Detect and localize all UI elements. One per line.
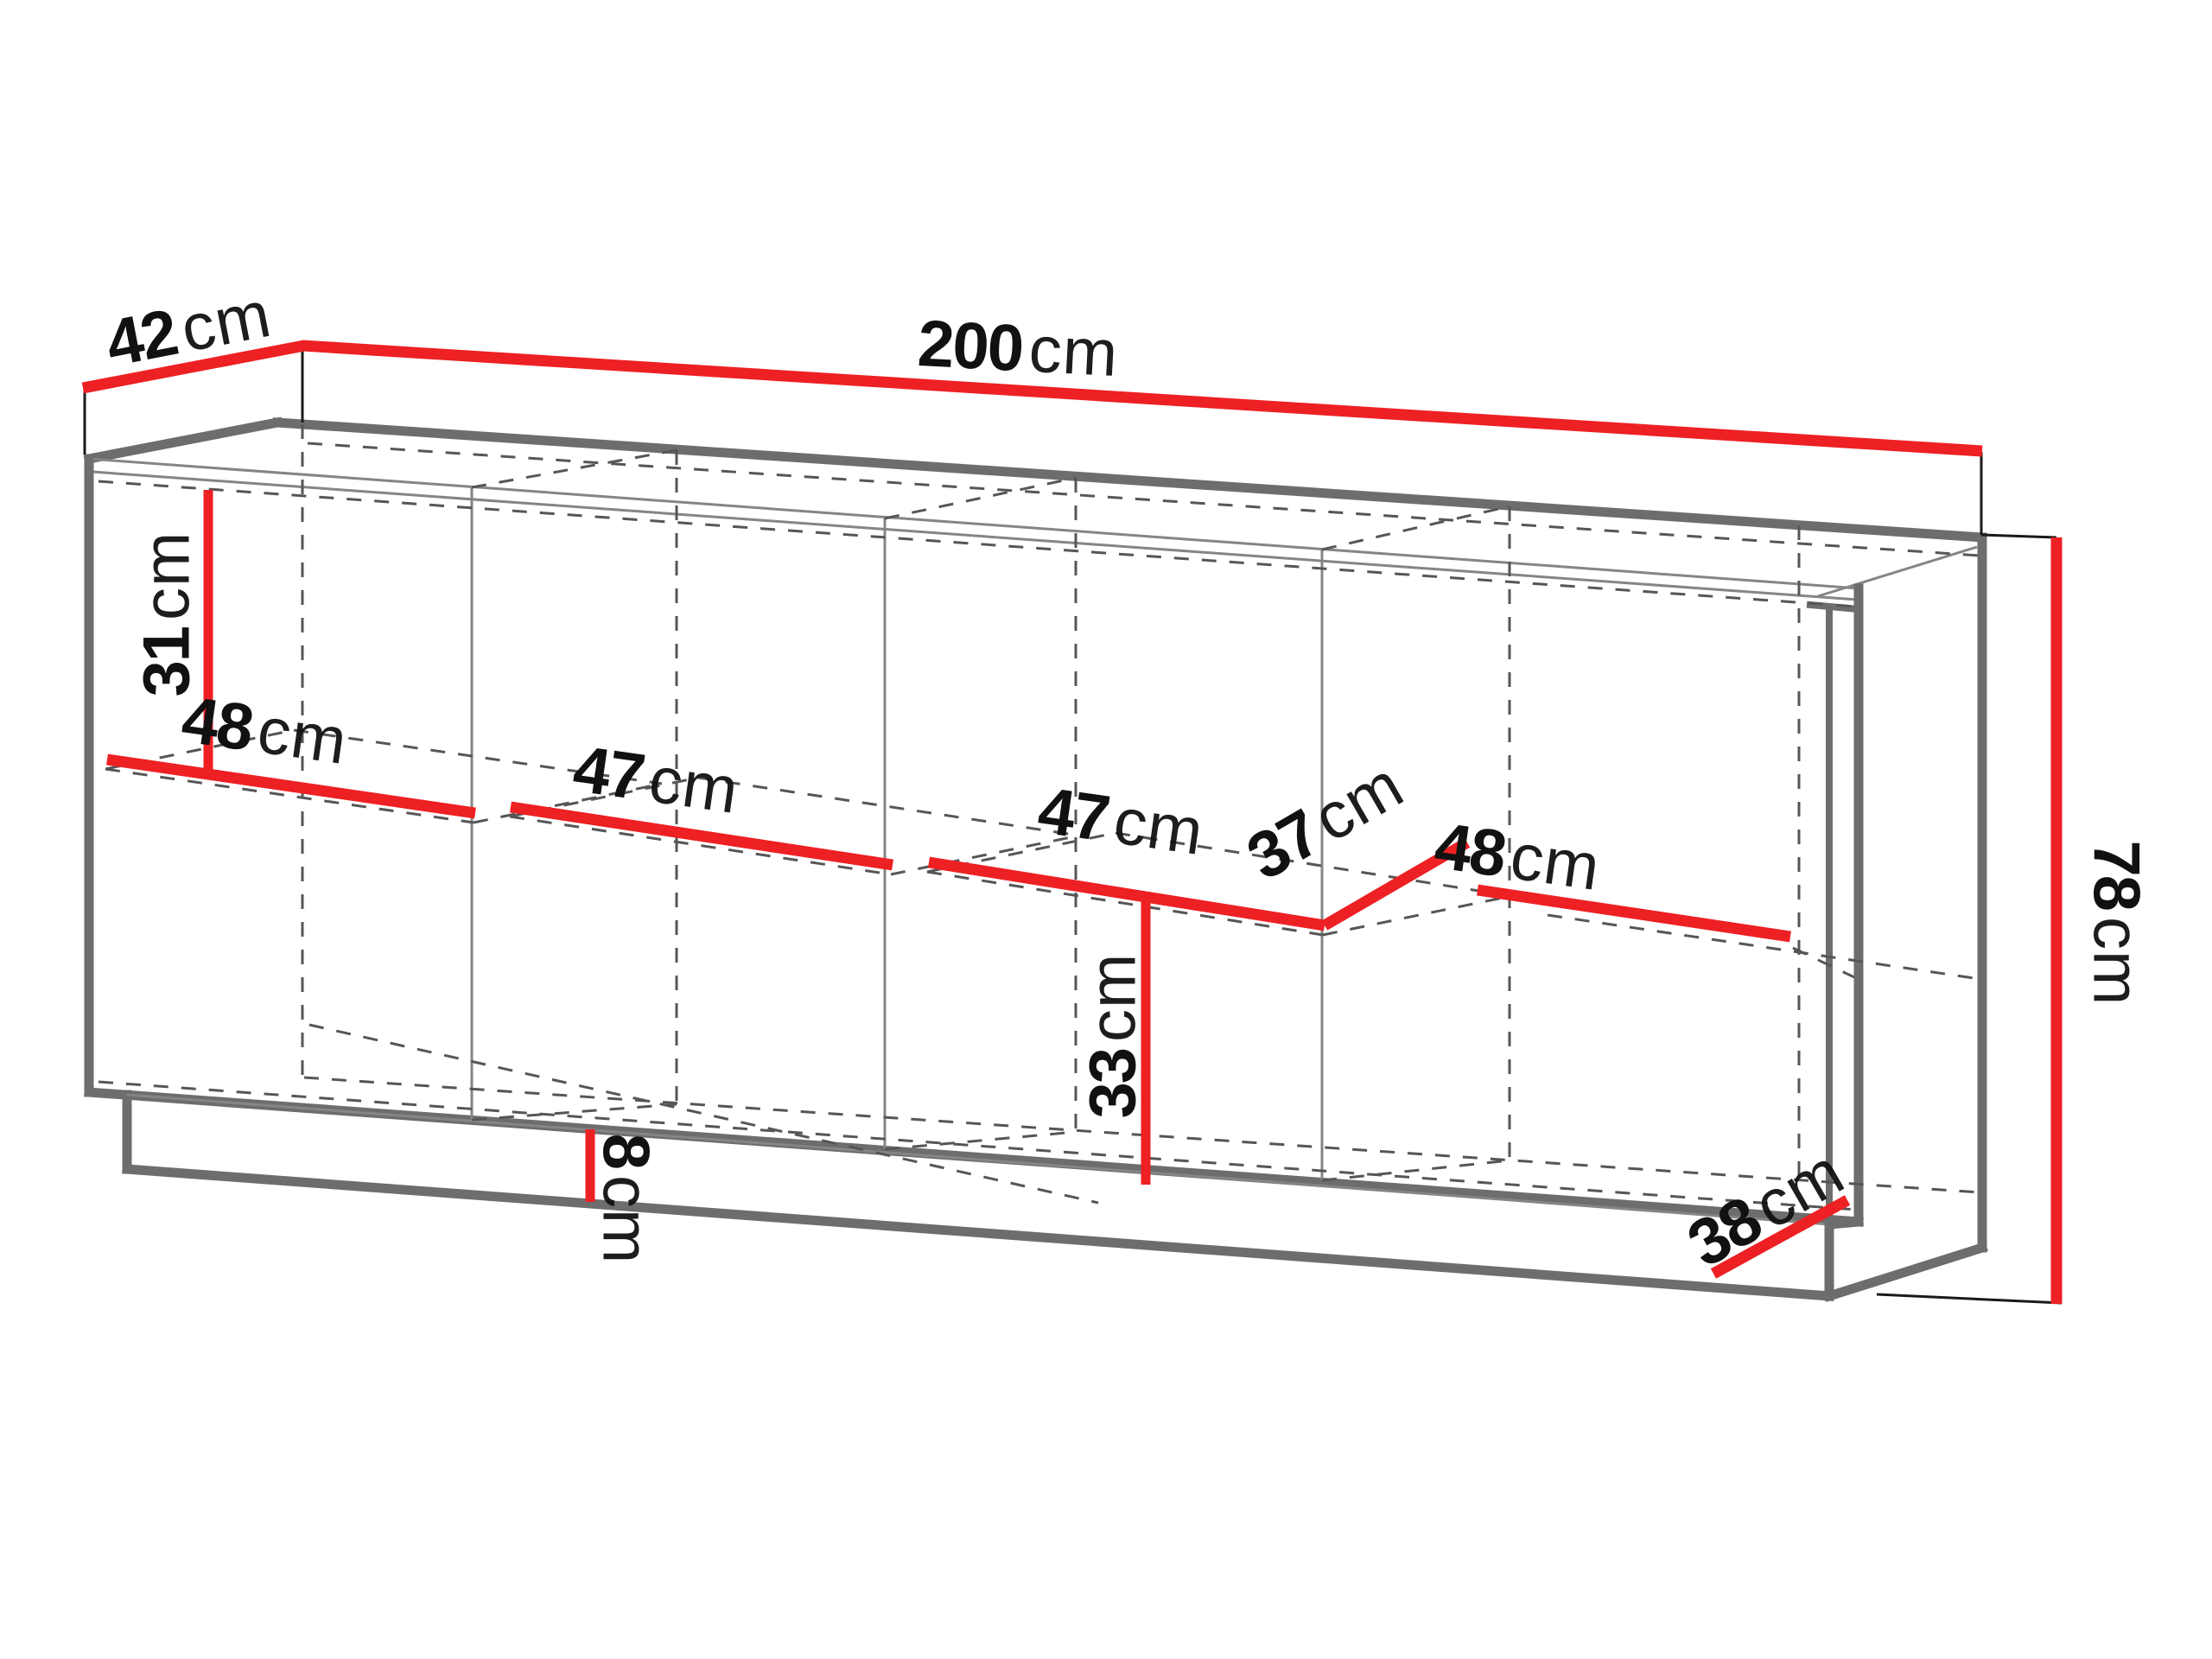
dim-value-height-78: 78	[2080, 840, 2153, 910]
shelf-2-front-dashed	[510, 817, 891, 874]
dim-unit-shelf-48-left: cm	[253, 693, 352, 779]
sideboard-diagram-canvas: 42 cm 200 cm 78 cm 31 cm 48 cm 47 cm 47 …	[0, 0, 2212, 1659]
dim-value-plinth-8: 8	[589, 1134, 663, 1168]
dim-label-width-200: 200 cm	[916, 307, 1120, 391]
dim-label-shelf-47-a: 47 cm	[569, 732, 743, 828]
dim-unit-height-78: cm	[2080, 917, 2153, 1006]
dim-value-depth-42: 42	[100, 296, 182, 381]
top-slab-right-depth-edge	[1818, 547, 1977, 596]
dim-unit-upper-31: cm	[130, 531, 204, 620]
dim-unit-lower-33: cm	[1077, 953, 1150, 1042]
dim-label-shelf-depth-37: 37 cm	[1236, 748, 1416, 895]
dim-label-shelf-47-b: 47 cm	[1033, 773, 1208, 869]
plinth-top-edge	[127, 1095, 1829, 1224]
divider-2-bottom-depth-dashed	[885, 1132, 1076, 1149]
top-inner-back-dashed	[308, 443, 1980, 556]
tick-78-bottom	[1877, 1294, 2062, 1303]
shelf-edges	[105, 730, 1980, 979]
dim-value-shelf-48-right: 48	[1430, 809, 1510, 891]
dim-value-shelf-47-a: 47	[569, 732, 648, 814]
shelf-1-front-dashed	[105, 769, 474, 823]
dim-value-lower-33: 33	[1077, 1049, 1150, 1119]
right-panel-inner-top-edge	[1810, 605, 1859, 609]
dim-label-shelf-48-right: 48 cm	[1430, 809, 1605, 905]
dim-line-shelf-48-right	[1478, 890, 1790, 937]
dim-value-shelf-47-b: 47	[1033, 773, 1113, 855]
shelf-4-depth-dashed	[1793, 948, 1854, 977]
dim-unit-shelf-47-b: cm	[1109, 784, 1208, 869]
dimension-diagram: 42 cm 200 cm 78 cm 31 cm 48 cm 47 cm 47 …	[0, 0, 2212, 1659]
dim-unit-plinth-8: cm	[589, 1175, 663, 1264]
dim-label-upper-31: 31 cm	[130, 531, 204, 697]
dim-label-lower-33: 33 cm	[1077, 953, 1150, 1119]
dim-label-plinth-8: 8 cm	[589, 1134, 663, 1265]
dim-value-shelf-48-left: 48	[177, 683, 257, 765]
dim-unit-shelf-47-a: cm	[645, 742, 743, 828]
dim-value-width-200: 200	[916, 307, 1024, 385]
divider-2-top-depth-dashed	[885, 478, 1076, 518]
divider-3-top-depth-dashed	[1322, 506, 1510, 550]
dim-unit-shelf-48-right: cm	[1506, 819, 1605, 905]
top-slab-underside-edge	[92, 472, 1857, 600]
shelf-4-back-dashed	[1548, 915, 1980, 979]
top-front-edge	[89, 459, 1859, 588]
dim-label-depth-42: 42 cm	[100, 277, 277, 381]
plinth-back-bottom-edge	[1829, 1248, 1982, 1296]
shelf-2-back-dashed	[698, 778, 1079, 836]
divider-3-bottom-depth-dashed	[1322, 1160, 1510, 1180]
dim-label-height-78: 78 cm	[2080, 840, 2153, 1006]
tick-78-top	[1981, 535, 2056, 537]
dim-unit-width-200: cm	[1027, 313, 1121, 391]
top-left-depth-edge	[89, 423, 277, 459]
cabinet-outline	[89, 423, 1982, 1296]
dim-line-width-200	[302, 346, 1982, 451]
